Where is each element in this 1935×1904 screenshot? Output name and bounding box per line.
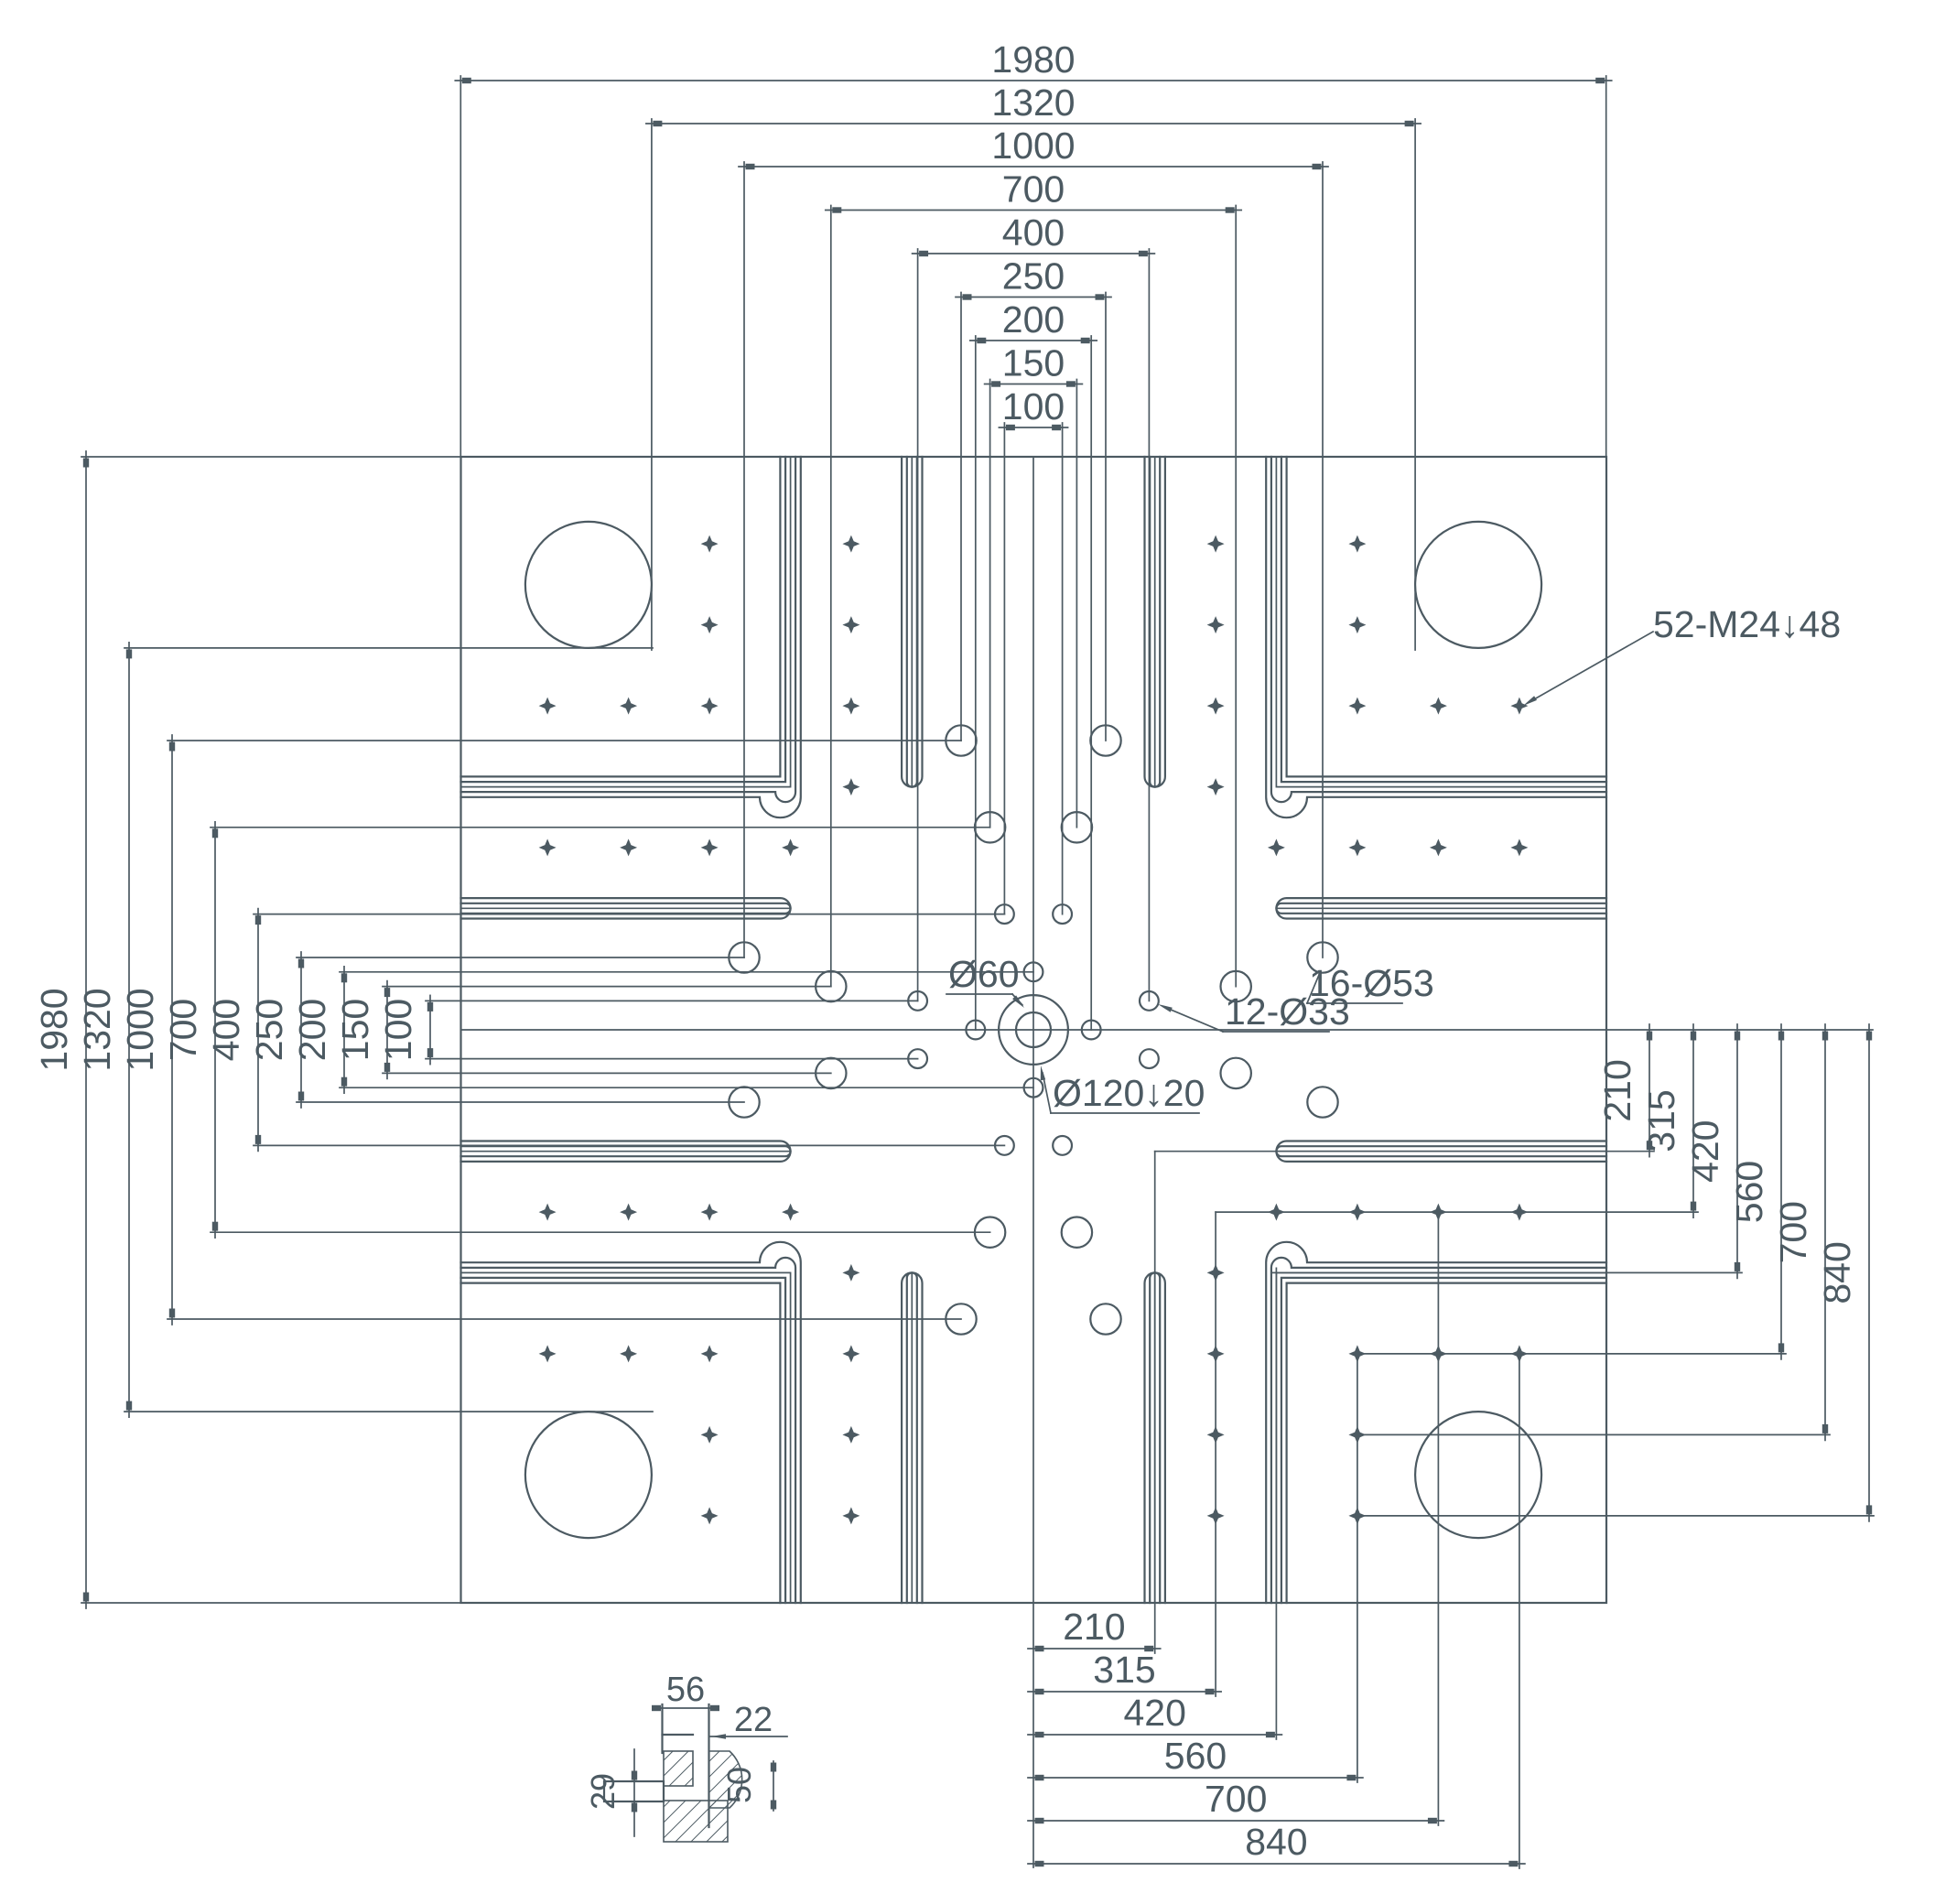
svg-text:16-Ø53: 16-Ø53 [1309, 962, 1434, 1004]
svg-text:420: 420 [1684, 1120, 1726, 1182]
svg-text:100: 100 [1002, 385, 1065, 427]
svg-text:50: 50 [720, 1767, 758, 1803]
svg-text:1980: 1980 [33, 988, 75, 1071]
svg-text:56: 56 [666, 1671, 705, 1709]
svg-text:840: 840 [1816, 1241, 1858, 1304]
svg-text:420: 420 [1123, 1692, 1185, 1734]
svg-text:250: 250 [248, 999, 290, 1061]
svg-text:1000: 1000 [991, 124, 1075, 167]
svg-text:29: 29 [584, 1773, 622, 1810]
svg-text:150: 150 [1002, 342, 1065, 384]
svg-text:315: 315 [1640, 1089, 1682, 1152]
svg-text:100: 100 [377, 999, 419, 1061]
svg-text:210: 210 [1596, 1059, 1638, 1121]
svg-text:315: 315 [1093, 1649, 1155, 1691]
svg-text:400: 400 [1002, 211, 1065, 254]
svg-text:700: 700 [1772, 1201, 1814, 1263]
svg-text:560: 560 [1728, 1161, 1770, 1223]
svg-text:22: 22 [734, 1701, 773, 1739]
svg-text:200: 200 [291, 999, 333, 1061]
svg-text:Ø120↓20: Ø120↓20 [1053, 1072, 1205, 1114]
svg-text:1320: 1320 [76, 988, 118, 1071]
svg-text:250: 250 [1002, 255, 1065, 297]
svg-text:210: 210 [1063, 1606, 1125, 1648]
svg-text:700: 700 [1205, 1778, 1267, 1820]
svg-text:1000: 1000 [119, 988, 161, 1071]
svg-text:700: 700 [1002, 168, 1065, 211]
svg-text:700: 700 [162, 999, 204, 1061]
svg-text:150: 150 [334, 999, 376, 1061]
svg-text:1980: 1980 [991, 38, 1075, 81]
svg-text:400: 400 [205, 999, 247, 1061]
svg-text:560: 560 [1164, 1735, 1227, 1777]
svg-text:840: 840 [1245, 1821, 1307, 1863]
svg-text:200: 200 [1002, 298, 1065, 341]
svg-text:52-M24↓48: 52-M24↓48 [1653, 603, 1841, 645]
svg-text:Ø60: Ø60 [948, 953, 1020, 995]
svg-text:1320: 1320 [991, 81, 1075, 124]
